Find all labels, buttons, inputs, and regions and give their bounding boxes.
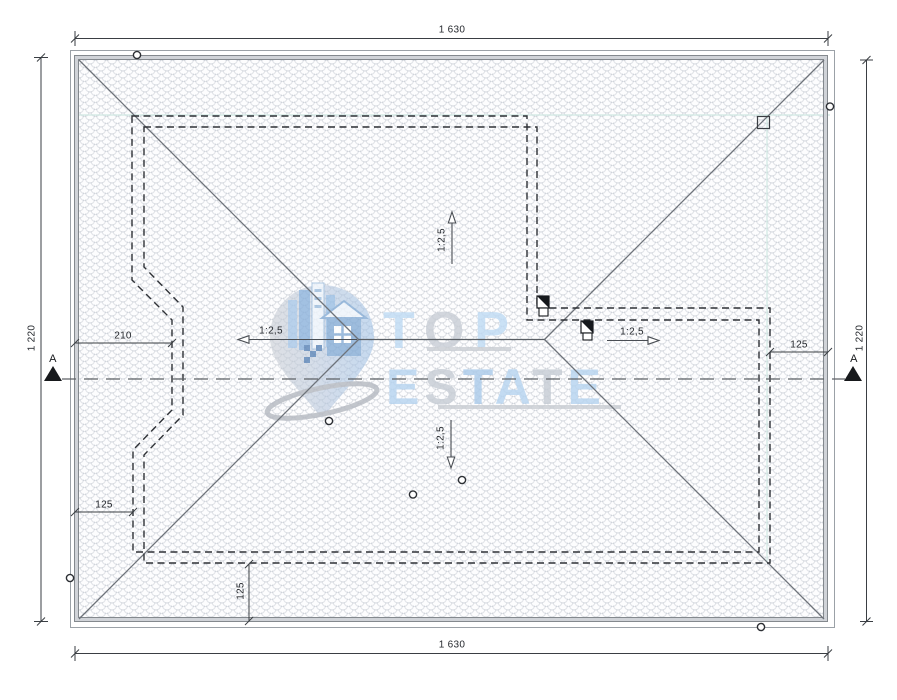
corner-marker-icon xyxy=(758,117,770,129)
dim-label-bottom: 1 630 xyxy=(439,640,466,651)
section-label-left: A xyxy=(49,353,57,365)
chimney-icons xyxy=(537,296,593,340)
section-marker-triangles xyxy=(44,366,862,381)
drawing-linework xyxy=(0,0,897,700)
roof-plan-drawing: TOP ESTATE xyxy=(0,0,897,700)
dim-label-right: 1 220 xyxy=(855,325,866,352)
dimension-lines xyxy=(34,31,873,661)
dim-label-left: 1 220 xyxy=(27,325,38,352)
dim-label-125-left: 125 xyxy=(95,500,113,511)
dim-label-top: 1 630 xyxy=(439,25,466,36)
dim-label-125-right: 125 xyxy=(790,340,808,351)
hip-and-ridge-lines xyxy=(79,60,824,619)
dim-label-125-bottom: 125 xyxy=(236,582,247,600)
slope-label-down: 1:2,5 xyxy=(436,426,447,450)
slope-label-right: 1:2,5 xyxy=(620,327,644,338)
dim-label-210: 210 xyxy=(114,331,132,342)
roof-vent-icons xyxy=(66,51,833,630)
section-label-right: A xyxy=(850,353,858,365)
slope-label-up: 1:2,5 xyxy=(437,228,448,252)
slope-label-left: 1:2,5 xyxy=(259,326,283,337)
